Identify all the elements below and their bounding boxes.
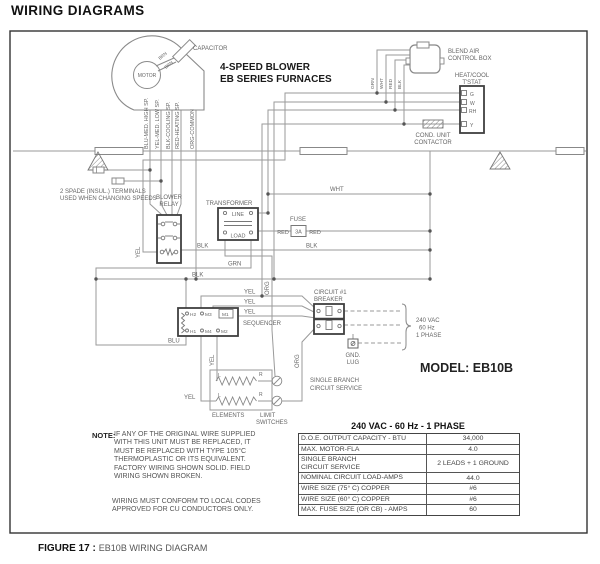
figure-number: FIGURE 17 :: [38, 543, 96, 554]
wire-label-yel-4: YEL: [136, 246, 142, 258]
limit-switches-label-line1: LIMIT: [260, 413, 276, 419]
figure-caption: FIGURE 17 :EB10B WIRING DIAGRAM: [38, 538, 207, 556]
note-line: FACTORY WIRING SHOWN SOLID. FIELD: [114, 465, 286, 473]
table-row: MAX. MOTOR-FLA 4.0: [299, 444, 519, 455]
lead-label-org: ORG-COMMON: [190, 109, 196, 149]
model-label: MODEL: EB10B: [420, 361, 513, 375]
wire-label-yel-2: YEL: [244, 300, 256, 306]
spec-table-header: 240 VAC - 60 Hz - 1 PHASE: [298, 421, 518, 431]
contactor-label-line1: COND. UNIT: [416, 133, 451, 139]
table-row: SINGLE BRANCH CIRCUIT SERVICE 2 LEADS + …: [299, 454, 519, 472]
note-line: WIRING SHOWN BROKEN.: [114, 473, 286, 481]
table-row: MAX. FUSE SIZE (OR CB) - AMPS 60: [299, 504, 519, 515]
spec-value: 44.0: [427, 473, 519, 483]
note-line: MUST BE REPLACED WITH TYPE 105°C: [114, 448, 286, 456]
wire-label-org-2: ORG: [295, 354, 301, 368]
seq-terminal-m4: M4: [205, 329, 212, 335]
element1-r: R: [259, 372, 263, 378]
heating-elements: L R L R ELEMENTS LIMIT SWITCHES: [210, 370, 288, 426]
gnd-lug-label-line2: LUG: [347, 360, 360, 366]
spec-label: SINGLE BRANCH CIRCUIT SERVICE: [299, 455, 427, 472]
transformer-load-label: LOAD: [231, 234, 246, 240]
limit-switches-label-line2: SWITCHES: [256, 420, 288, 426]
wire-label-blu: BLU: [168, 339, 180, 345]
spec-label: NOMINAL CIRCUIT LOAD-AMPS: [299, 473, 427, 483]
wire-label-wht-drop: WHT: [379, 78, 385, 89]
note-text: IF ANY OF THE ORIGINAL WIRE SUPPLIED WIT…: [114, 431, 286, 481]
contactor-label-line2: CONTACTOR: [414, 140, 452, 146]
blower-relay: BLOWER RELAY: [156, 195, 183, 263]
wire-label-org-1: ORG: [265, 281, 271, 295]
spec-label: WIRE SIZE (75° C) COPPER: [299, 484, 427, 494]
lead-label-red: RED-HEATING SP.: [175, 101, 181, 149]
blend-air-control-box: BLEND AIR CONTROL BOX: [406, 42, 491, 73]
ground-symbol-right: [490, 152, 510, 169]
wire-label-red-drop: RED: [388, 78, 394, 89]
spade-note-line2: USED WHEN CHANGING SPEEDS: [60, 196, 157, 202]
motor-label: MOTOR: [138, 73, 157, 79]
wire-label-red-fuse-right: RED: [309, 230, 321, 236]
table-row: WIRE SIZE (60° C) COPPER #6: [299, 494, 519, 505]
diagram-heading-line2: EB SERIES FURNACES: [220, 74, 332, 85]
note-text-2: WIRING MUST CONFORM TO LOCAL CODES APPRO…: [112, 498, 292, 515]
wire-label-blk-1: BLK: [197, 244, 208, 250]
breaker-label-line1: CIRCUIT #1: [314, 290, 347, 296]
tstat-label-line1: HEAT/COOL: [455, 73, 490, 79]
spec-label: MAX. FUSE SIZE (OR CB) - AMPS: [299, 505, 427, 515]
wire-label-blk-2: BLK: [306, 244, 317, 250]
lead-label-blk: BLK-COOLING SP.: [166, 101, 172, 149]
wire-label-yel-5: YEL: [210, 354, 216, 366]
spec-label: D.O.E. OUTPUT CAPACITY - BTU: [299, 434, 427, 444]
sequencer-label: SEQUENCER: [243, 321, 282, 327]
fuse-label: FUSE: [290, 217, 306, 223]
fuse-rating: 3A: [295, 230, 302, 236]
capacitor-label: CAPACITOR: [193, 46, 228, 52]
spec-value: 60: [427, 505, 519, 515]
wire-label-wht: WHT: [330, 187, 344, 193]
seq-terminal-h1: H1: [190, 329, 196, 335]
ground-symbols: [88, 152, 510, 170]
relay-label-line1: BLOWER: [156, 195, 183, 201]
blower-motor: MOTOR BRN BRN CAPACITOR: [112, 36, 228, 110]
tstat-terminal-rh: RH: [469, 109, 477, 115]
transformer: TRANSFORMER LINE LOAD: [206, 201, 258, 240]
fuse: FUSE RED 3A RED: [277, 217, 321, 237]
sequencer: H2 M3 M1 H1 M4 M2 SEQUENCER: [178, 308, 282, 336]
table-row: D.O.E. OUTPUT CAPACITY - BTU 34,000: [299, 434, 519, 444]
transformer-label: TRANSFORMER: [206, 201, 253, 207]
lead-label-blu: BLU-MED. HIGH SP.: [144, 97, 150, 149]
spec-label: MAX. MOTOR-FLA: [299, 445, 427, 455]
spec-value: #6: [427, 484, 519, 494]
branch-label-line1: SINGLE BRANCH: [310, 378, 359, 384]
tstat-label-line2: T'STAT: [462, 80, 482, 86]
wire-label-yel-3: YEL: [244, 310, 256, 316]
spec-value: 4.0: [427, 445, 519, 455]
wire-label-grn: GRN: [228, 262, 241, 268]
table-row: WIRE SIZE (75° C) COPPER #6: [299, 483, 519, 494]
element2-r: R: [259, 392, 263, 398]
circuit-breaker: CIRCUIT #1 BREAKER: [314, 290, 347, 334]
wire-label-grn-drop: GRN: [370, 78, 376, 89]
note-line: WITH THIS UNIT MUST BE REPLACED, IT: [114, 439, 286, 447]
wire-label-red-fuse-left: RED: [277, 230, 289, 236]
spade-note-line1: 2 SPADE (INSUL.) TERMINALS: [60, 189, 146, 195]
seq-terminal-m1: M1: [222, 312, 229, 318]
spec-label: WIRE SIZE (60° C) COPPER: [299, 495, 427, 505]
supply-label-line2: 60 Hz: [419, 326, 435, 332]
tstat-terminal-g: G: [470, 92, 474, 98]
note-line: IF ANY OF THE ORIGINAL WIRE SUPPLIED: [114, 431, 286, 439]
gnd-lug-label-line1: GND.: [346, 353, 361, 359]
wire-label-yel-6: YEL: [184, 395, 196, 401]
note-line: APPROVED FOR CU CONDUCTORS ONLY.: [112, 506, 292, 514]
wire-label-blk-3: BLK: [192, 273, 203, 279]
breaker-label-line2: BREAKER: [314, 297, 343, 303]
seq-terminal-m3: M3: [205, 312, 212, 318]
spec-value: 34,000: [427, 434, 519, 444]
blend-air-label-line1: BLEND AIR: [448, 49, 480, 55]
lead-label-yel: YEL-MED. LOW SP.: [155, 99, 161, 149]
tstat-terminal-w: W: [470, 101, 475, 107]
seq-terminal-m2: M2: [221, 329, 228, 335]
seq-terminal-h2: H2: [190, 312, 196, 318]
figure-title: EB10B WIRING DIAGRAM: [99, 543, 208, 553]
relay-label-line2: RELAY: [159, 202, 178, 208]
table-row: NOMINAL CIRCUIT LOAD-AMPS 44.0: [299, 472, 519, 483]
transformer-line-label: LINE: [232, 212, 245, 218]
supply-label-line3: 1 PHASE: [416, 333, 441, 339]
spec-value: 2 LEADS + 1 GROUND: [427, 455, 519, 472]
note-line: THERMOPLASTIC OR ITS EQUIVALENT.: [114, 456, 286, 464]
supply-callout: 240 VAC 60 Hz 1 PHASE: [402, 304, 441, 350]
wire-label-yel-1: YEL: [244, 290, 256, 296]
spec-table: D.O.E. OUTPUT CAPACITY - BTU 34,000 MAX.…: [298, 433, 520, 516]
wire-label-blk-drop: BLK: [397, 79, 403, 89]
note-line: WIRING MUST CONFORM TO LOCAL CODES: [112, 498, 292, 506]
spade-terminals: 2 SPADE (INSUL.) TERMINALS USED WHEN CHA…: [60, 167, 157, 202]
spec-value: #6: [427, 495, 519, 505]
thermostat: HEAT/COOL T'STAT G W RH Y: [455, 73, 490, 133]
diagram-heading-line1: 4-SPEED BLOWER: [220, 62, 311, 73]
elements-label: ELEMENTS: [212, 413, 244, 419]
supply-label-line1: 240 VAC: [416, 318, 440, 324]
blend-air-label-line2: CONTROL BOX: [448, 56, 491, 62]
branch-label-line2: CIRCUIT SERVICE: [310, 386, 362, 392]
note-label: NOTE:: [92, 431, 115, 440]
